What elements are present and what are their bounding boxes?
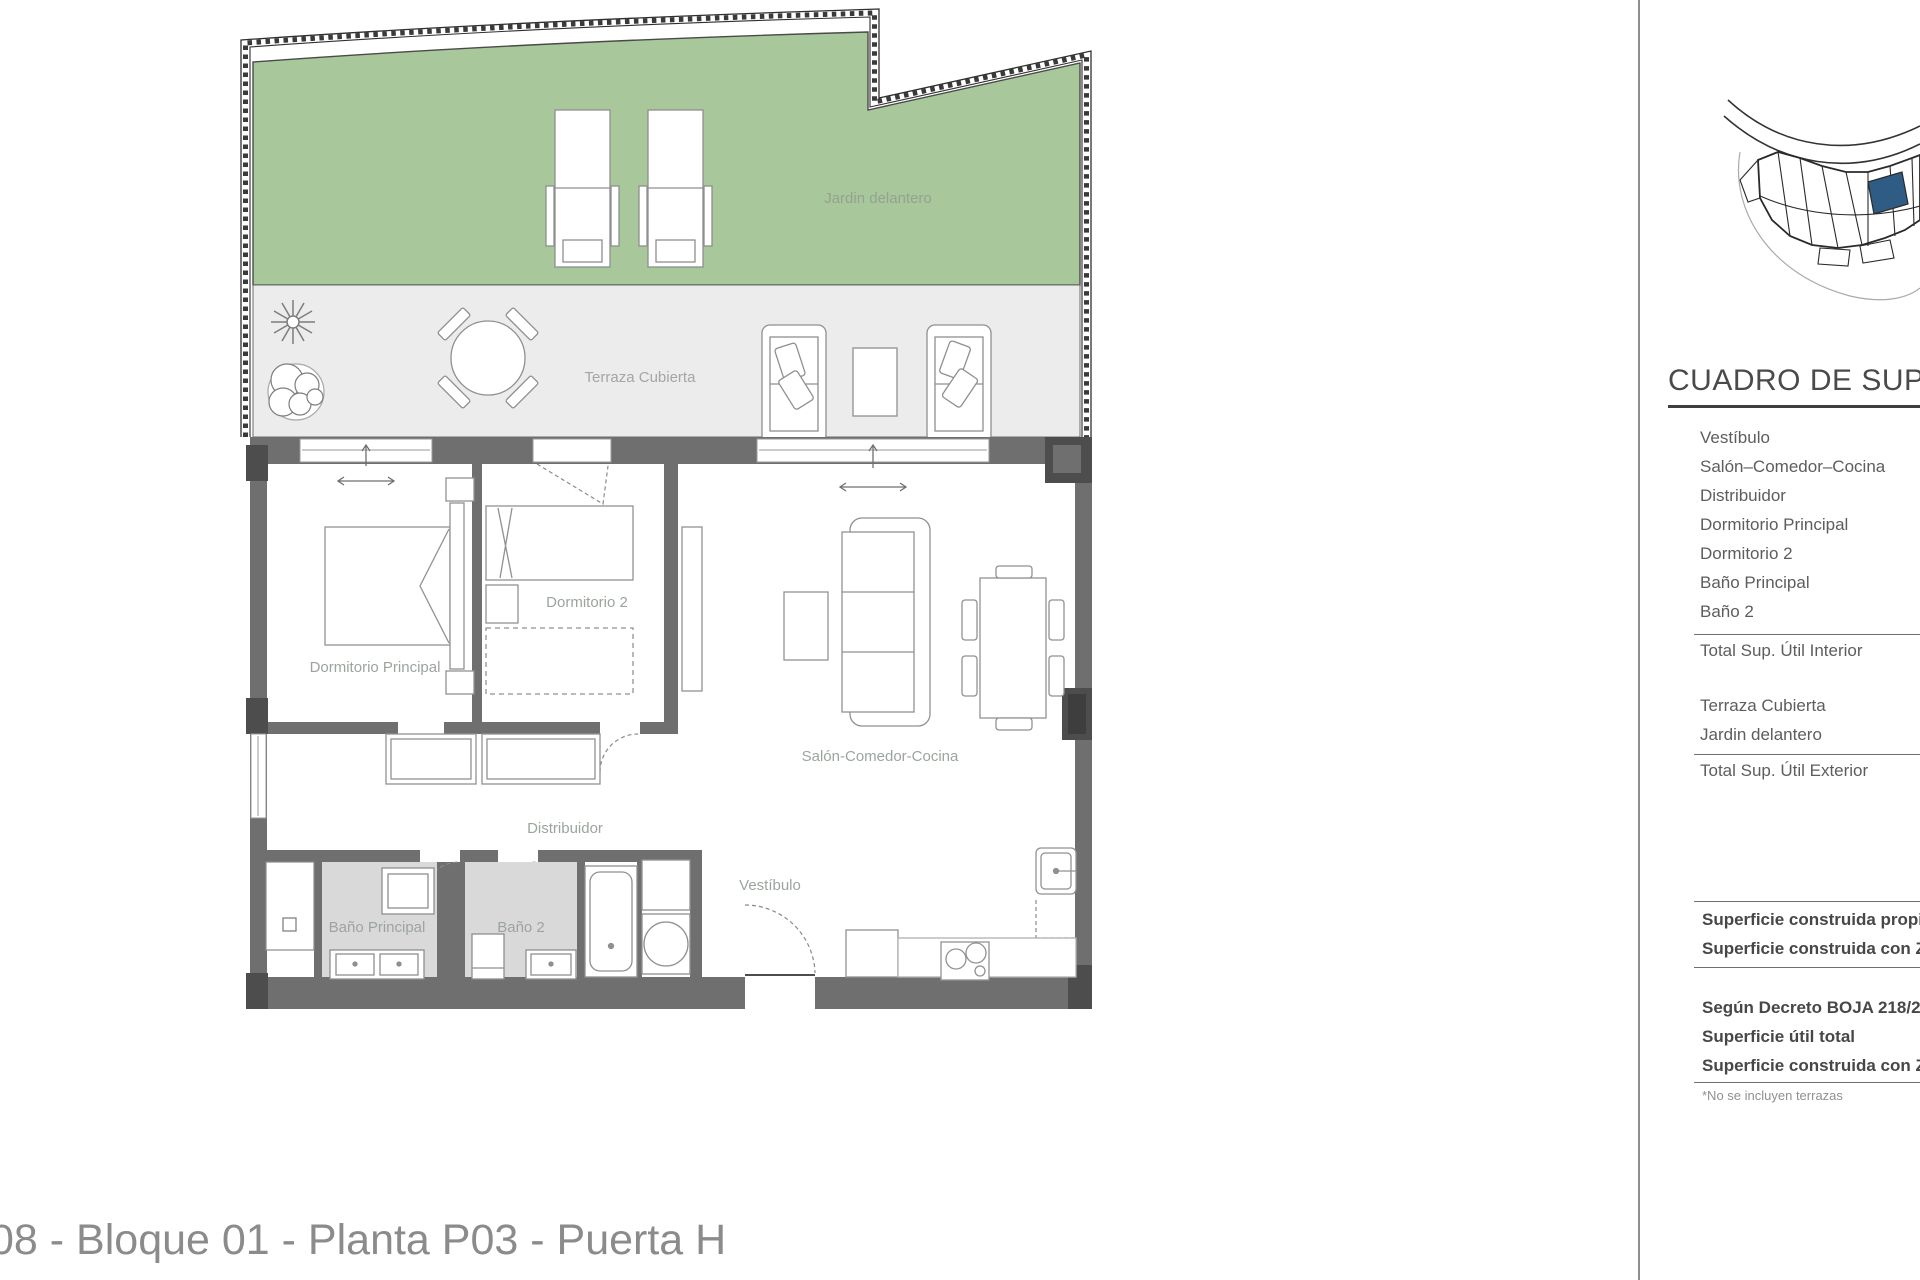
bath-main-label: Baño Principal — [329, 919, 426, 936]
floor-plan: Jardin delantero Terraza Cubierta Dormit… — [0, 0, 1920, 1280]
garden-label: Jardin delantero — [824, 190, 932, 207]
room-row: Terraza Cubierta — [1700, 696, 1826, 716]
bedroom-2-label: Dormitorio 2 — [546, 594, 628, 611]
decree-row: Superficie útil total — [1702, 1027, 1855, 1047]
room-row: Distribuidor — [1700, 486, 1786, 506]
terrace-table-icon — [437, 307, 538, 408]
room-row: Baño Principal — [1700, 573, 1810, 593]
table-rule — [1694, 1082, 1920, 1083]
interior-total-row: Total Sup. Útil Interior — [1700, 641, 1863, 661]
surface-table-heading: CUADRO DE SUPERF — [1668, 366, 1920, 408]
terrace-label: Terraza Cubierta — [585, 369, 697, 386]
decree-row: Superficie construida con ZZ — [1702, 1056, 1920, 1076]
room-row: Vestíbulo — [1700, 428, 1770, 448]
exterior-total-row: Total Sup. Útil Exterior — [1700, 761, 1868, 781]
table-rule — [1694, 967, 1920, 968]
decree-row: Según Decreto BOJA 218/200 — [1702, 998, 1920, 1018]
room-row: Dormitorio 2 — [1700, 544, 1793, 564]
built-surface-row: Superficie construida propia — [1702, 910, 1920, 930]
pillar-inset — [1053, 445, 1081, 473]
table-rule — [1694, 901, 1920, 902]
pillar-core — [1068, 694, 1086, 734]
room-row: Dormitorio Principal — [1700, 515, 1848, 535]
bedroom-main-label: Dormitorio Principal — [310, 659, 441, 676]
bath-2-label: Baño 2 — [497, 919, 545, 936]
footnote: *No se incluyen terrazas — [1702, 1088, 1843, 1103]
plan-title: 08 - Bloque 01 - Planta P03 - Puerta H — [0, 1216, 726, 1265]
living-room-label: Salón-Comedor-Cocina — [802, 748, 959, 765]
vestibule-label: Vestíbulo — [739, 877, 801, 894]
hall-label: Distribuidor — [527, 820, 603, 837]
built-surface-row: Superficie construida con ZZ — [1702, 939, 1920, 959]
plant-bush-icon — [268, 364, 324, 420]
panel-divider — [1638, 0, 1640, 1280]
table-rule — [1694, 754, 1920, 755]
entry-door — [745, 975, 815, 1009]
room-row: Salón–Comedor–Cocina — [1700, 457, 1885, 477]
patio-niche — [266, 862, 314, 950]
site-plan-locator — [1700, 60, 1920, 320]
room-row: Jardin delantero — [1700, 725, 1822, 745]
room-row: Baño 2 — [1700, 602, 1754, 622]
table-rule — [1694, 634, 1920, 635]
